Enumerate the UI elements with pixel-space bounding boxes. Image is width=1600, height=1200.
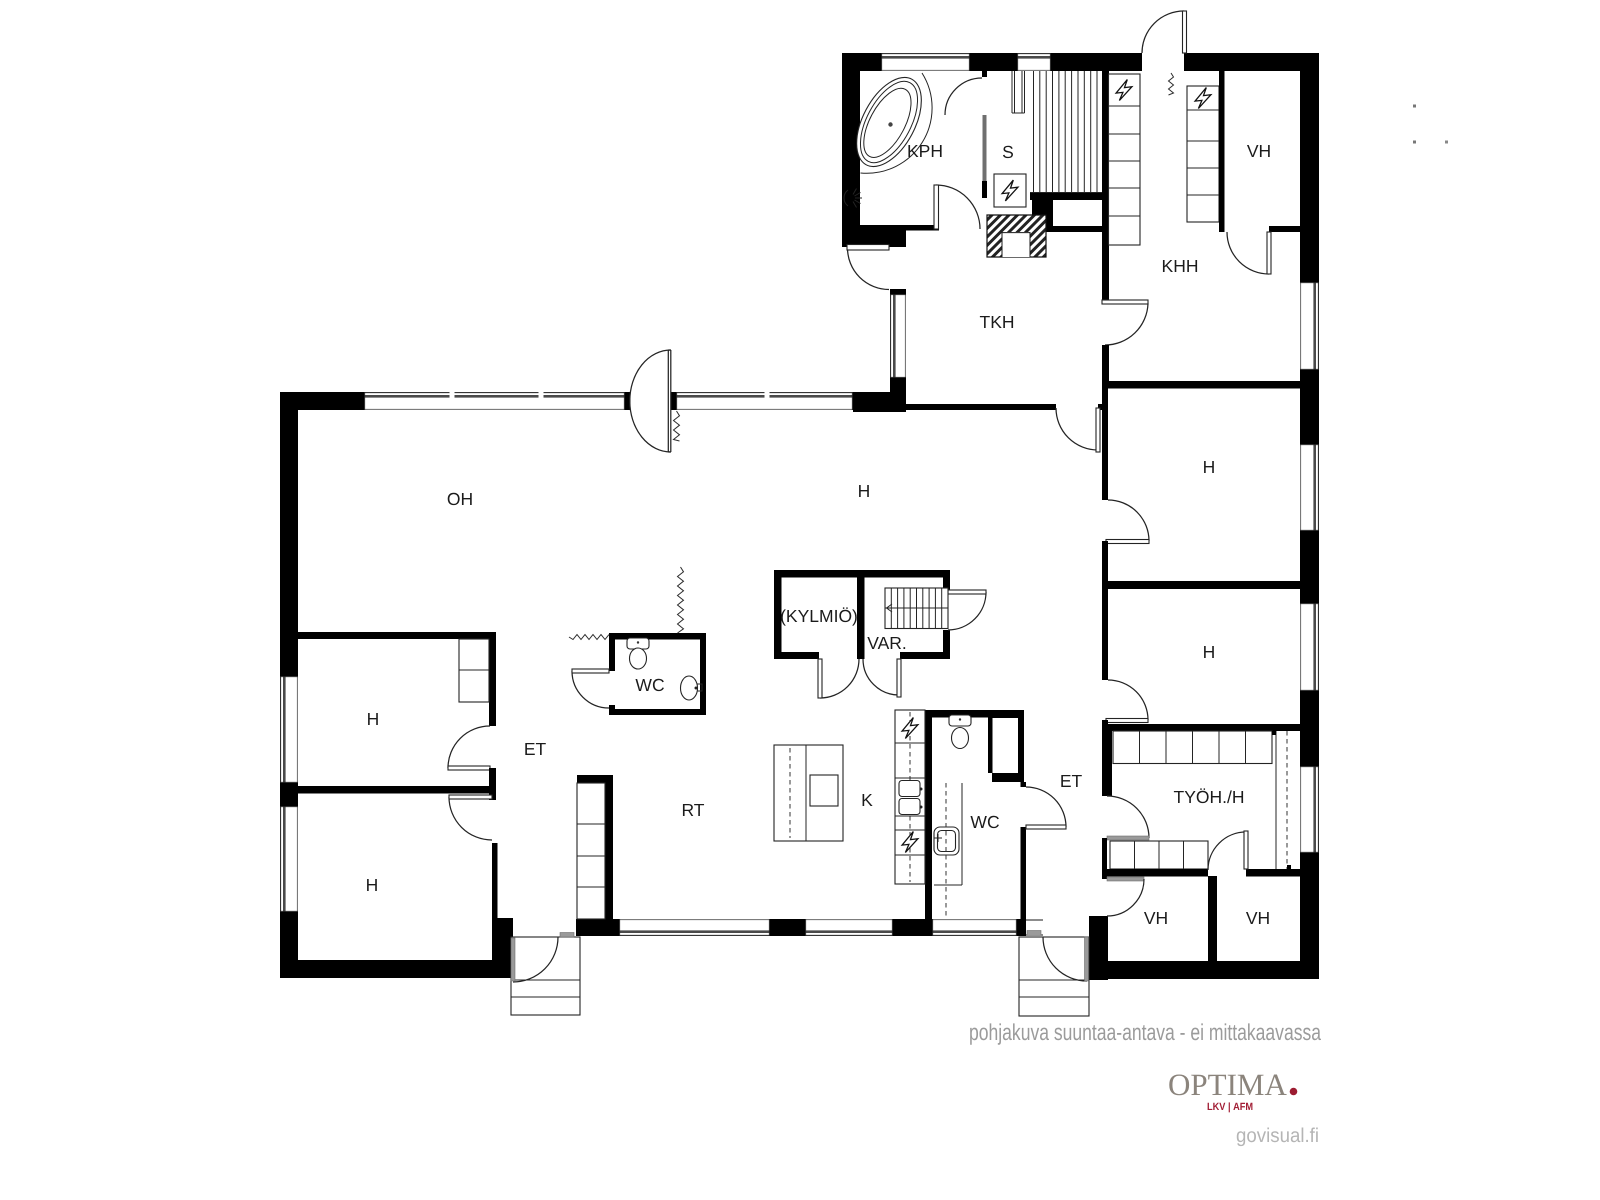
svg-text:H: H (366, 875, 379, 895)
svg-text:KHH: KHH (1162, 256, 1199, 276)
svg-text:WC: WC (970, 812, 999, 832)
svg-text:VH: VH (1144, 908, 1168, 928)
svg-text:(KYLMIÖ): (KYLMIÖ) (780, 606, 858, 626)
svg-text:H: H (1203, 457, 1216, 477)
svg-text:govisual.fi: govisual.fi (1236, 1125, 1319, 1147)
svg-text:VH: VH (1246, 908, 1270, 928)
svg-text:RT: RT (681, 800, 704, 820)
svg-text:H: H (858, 481, 871, 501)
svg-text:VH: VH (1247, 141, 1271, 161)
svg-text:OH: OH (447, 489, 473, 509)
svg-text:TKH: TKH (980, 312, 1015, 332)
svg-text:H: H (367, 709, 380, 729)
svg-text:S: S (1002, 142, 1014, 162)
svg-text:ET: ET (524, 739, 547, 759)
svg-text:VAR.: VAR. (867, 633, 907, 653)
svg-text:LKV | AFM: LKV | AFM (1207, 1101, 1253, 1113)
svg-text:K: K (861, 790, 873, 810)
svg-text:WC: WC (635, 675, 664, 695)
svg-text:OPTIMA: OPTIMA (1168, 1067, 1287, 1102)
svg-text:ET: ET (1060, 771, 1083, 791)
svg-text:H: H (1203, 642, 1216, 662)
svg-text:TYÖH./H: TYÖH./H (1174, 787, 1245, 807)
svg-text:KPH: KPH (907, 141, 943, 161)
svg-text:pohjakuva suuntaa-antava - ei: pohjakuva suuntaa-antava - ei mittakaava… (969, 1019, 1321, 1045)
